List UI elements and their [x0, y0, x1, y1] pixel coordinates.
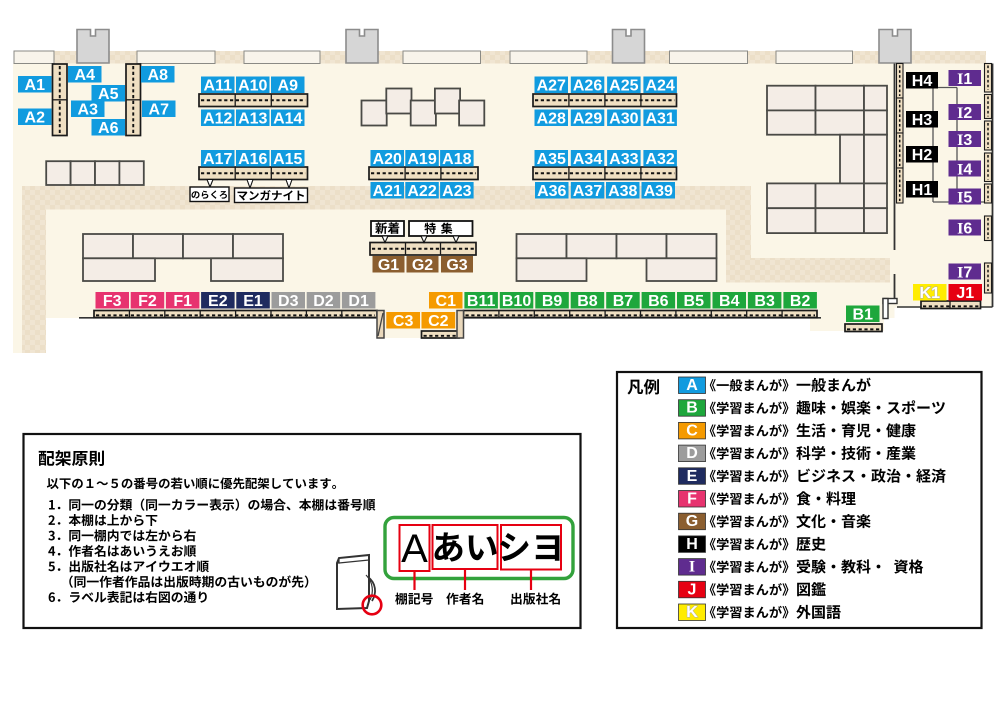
svg-text:F1: F1 [173, 293, 192, 310]
svg-text:A: A [401, 527, 428, 571]
svg-text:B2: B2 [790, 293, 811, 310]
svg-text:B4: B4 [719, 293, 740, 310]
svg-text:H: H [686, 536, 698, 553]
svg-text:A38: A38 [608, 183, 637, 200]
svg-text:A31: A31 [645, 111, 674, 128]
svg-text:D: D [686, 445, 698, 462]
svg-text:E: E [687, 468, 698, 485]
svg-text:B7: B7 [613, 293, 634, 310]
svg-text:I4: I4 [957, 161, 972, 178]
svg-text:B11: B11 [467, 293, 496, 310]
svg-text:A35: A35 [537, 151, 566, 168]
svg-text:A26: A26 [573, 78, 602, 95]
svg-text:B9: B9 [542, 293, 563, 310]
svg-text:F2: F2 [138, 293, 157, 310]
svg-text:A9: A9 [278, 78, 299, 95]
svg-text:B8: B8 [577, 293, 598, 310]
svg-text:A27: A27 [537, 78, 566, 95]
svg-text:J1: J1 [956, 285, 974, 302]
svg-text:A22: A22 [407, 183, 436, 200]
svg-text:A23: A23 [442, 183, 471, 200]
svg-text:I5: I5 [957, 189, 972, 206]
svg-text:F: F [687, 491, 697, 508]
svg-text:A16: A16 [238, 151, 267, 168]
svg-text:A29: A29 [573, 111, 602, 128]
svg-text:A39: A39 [644, 183, 673, 200]
svg-text:A33: A33 [609, 151, 638, 168]
svg-text:A28: A28 [537, 111, 566, 128]
svg-text:D2: D2 [313, 293, 334, 310]
svg-text:B: B [686, 400, 698, 417]
svg-text:A6: A6 [98, 120, 119, 137]
svg-text:A12: A12 [203, 111, 232, 128]
svg-text:B5: B5 [684, 293, 705, 310]
svg-text:A14: A14 [273, 111, 302, 128]
svg-text:D1: D1 [348, 293, 369, 310]
svg-text:B3: B3 [754, 293, 775, 310]
svg-text:K: K [686, 604, 698, 621]
svg-text:A: A [686, 377, 698, 394]
svg-text:A34: A34 [573, 151, 602, 168]
svg-text:K1: K1 [920, 285, 941, 302]
svg-text:H1: H1 [912, 182, 933, 199]
svg-text:C2: C2 [428, 313, 449, 330]
svg-text:A37: A37 [573, 183, 602, 200]
svg-text:I3: I3 [957, 132, 972, 149]
svg-text:E1: E1 [243, 293, 263, 310]
svg-text:C1: C1 [436, 293, 457, 310]
svg-text:D3: D3 [278, 293, 299, 310]
svg-text:C: C [686, 422, 698, 439]
svg-text:B10: B10 [502, 293, 531, 310]
svg-text:I2: I2 [957, 105, 972, 122]
svg-text:A18: A18 [442, 151, 471, 168]
svg-text:A8: A8 [148, 67, 169, 84]
svg-text:A13: A13 [238, 111, 267, 128]
svg-text:I7: I7 [957, 264, 972, 281]
svg-text:B6: B6 [648, 293, 669, 310]
svg-text:E2: E2 [208, 293, 228, 310]
svg-text:A17: A17 [203, 151, 232, 168]
svg-text:A7: A7 [149, 102, 170, 119]
svg-text:A3: A3 [78, 102, 99, 119]
svg-text:G3: G3 [446, 257, 467, 274]
svg-text:I: I [689, 559, 695, 576]
svg-text:J: J [688, 581, 697, 598]
svg-text:A21: A21 [373, 183, 402, 200]
svg-text:I1: I1 [957, 71, 972, 88]
svg-text:H2: H2 [912, 147, 933, 164]
svg-text:A1: A1 [25, 77, 46, 94]
svg-text:F3: F3 [103, 293, 122, 310]
svg-text:A20: A20 [373, 151, 402, 168]
svg-text:G1: G1 [378, 257, 399, 274]
svg-text:A4: A4 [75, 67, 96, 84]
svg-text:H4: H4 [912, 73, 933, 90]
svg-text:A32: A32 [645, 151, 674, 168]
svg-text:B1: B1 [853, 307, 874, 324]
svg-text:A24: A24 [645, 78, 674, 95]
svg-text:G2: G2 [412, 257, 433, 274]
svg-text:A19: A19 [407, 151, 436, 168]
svg-text:C3: C3 [393, 313, 414, 330]
svg-text:A36: A36 [537, 183, 566, 200]
svg-text:G: G [686, 513, 698, 530]
svg-text:A10: A10 [238, 78, 267, 95]
svg-text:A2: A2 [25, 110, 46, 127]
svg-text:I6: I6 [957, 220, 972, 237]
svg-text:A30: A30 [609, 111, 638, 128]
svg-text:H3: H3 [912, 112, 933, 129]
svg-text:A25: A25 [609, 78, 638, 95]
svg-text:A11: A11 [204, 78, 233, 95]
svg-text:A15: A15 [273, 151, 302, 168]
